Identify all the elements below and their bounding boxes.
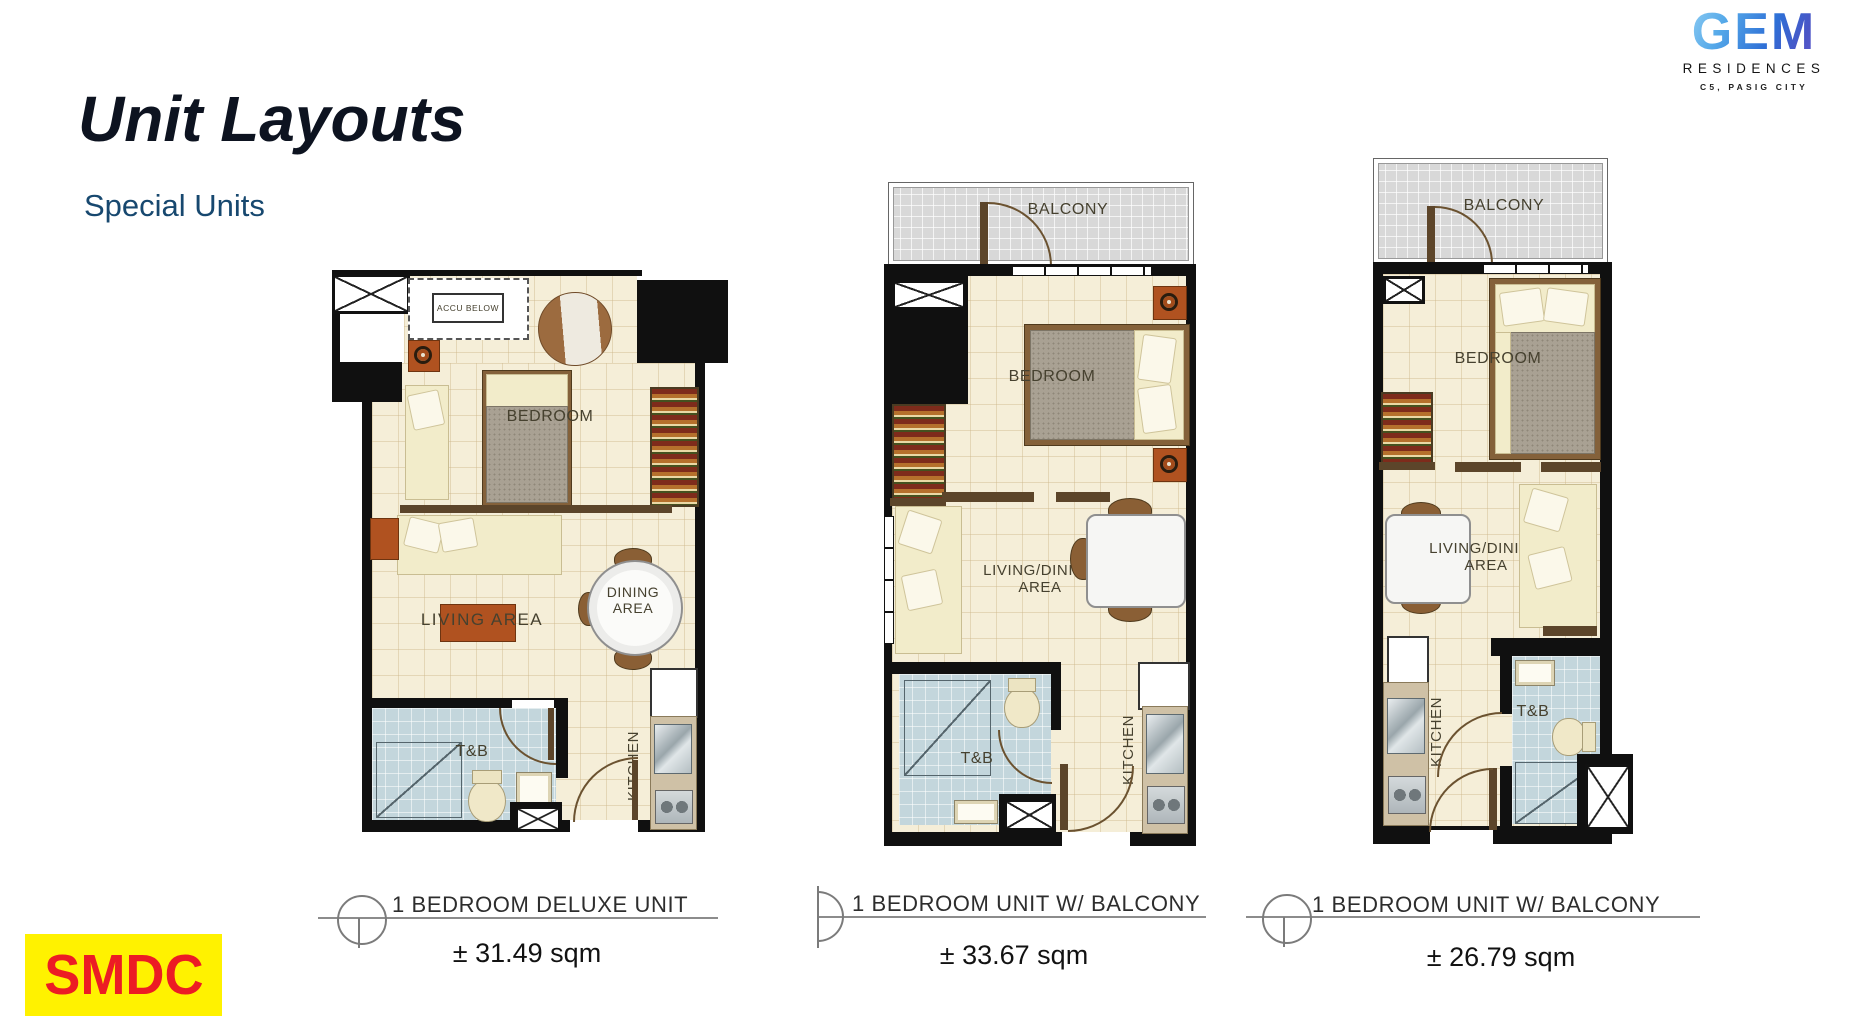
room-label-balcony: BALCONY (1456, 197, 1552, 215)
bed-pillows (486, 374, 568, 408)
room-label-accu: ACCU BELOW (432, 293, 504, 323)
kitchen-sink (1387, 698, 1425, 754)
floor-plan-balcony-1: BALCONY BEDROOM LIVING/DINING AREA T&B (884, 174, 1196, 846)
kitchen-sink (654, 724, 692, 774)
divider-wall (942, 492, 1034, 502)
room-label-tnb: T&B (442, 743, 502, 761)
shelf (1543, 626, 1597, 636)
lamp (1160, 293, 1178, 311)
window-box (892, 280, 966, 310)
wall-block (637, 280, 728, 363)
caption-marker (818, 891, 844, 942)
slide-background: { "slide": { "title": "Unit Layouts", "s… (0, 0, 1860, 1024)
shaft-box (1585, 764, 1631, 830)
wall (884, 832, 1196, 846)
unit-caption-3: 1 BEDROOM UNIT W/ BALCONY (1312, 892, 1660, 918)
bathroom-sink (516, 772, 552, 806)
stove (1147, 786, 1185, 824)
caption-marker-tick (1283, 917, 1285, 947)
unit-area-3: ± 26.79 sqm (1351, 942, 1651, 973)
room-label-bedroom: BEDROOM (1002, 368, 1102, 386)
caption-marker (1262, 894, 1312, 944)
unit-caption-1: 1 BEDROOM DELUXE UNIT (392, 892, 688, 918)
gem-residences-logo: GEM RESIDENCES C5, PASIG CITY (1678, 6, 1830, 92)
window (1483, 264, 1589, 274)
unit-area-2: ± 33.67 sqm (864, 940, 1164, 971)
toilet (1552, 718, 1586, 756)
caption-marker-tick (358, 918, 360, 948)
wall (332, 306, 340, 364)
wall (890, 662, 1061, 674)
door-leaf (548, 708, 554, 760)
shelf (1379, 462, 1435, 470)
pillow (1499, 287, 1545, 327)
room-label-dining: DINING AREA (598, 584, 668, 616)
dining-table (1086, 514, 1186, 608)
bathroom-sink (954, 800, 998, 824)
stove (1388, 776, 1426, 814)
room-label-bedroom: BEDROOM (1448, 350, 1548, 368)
unit-area-1: ± 31.49 sqm (377, 938, 677, 969)
wall (362, 402, 372, 828)
side-table (370, 518, 399, 560)
window-box (332, 274, 410, 314)
gem-logo-residences: RESIDENCES (1678, 61, 1830, 76)
lamp (414, 346, 432, 364)
page-subtitle: Special Units (84, 188, 265, 224)
refrigerator (1387, 636, 1429, 684)
wall (1600, 274, 1612, 830)
shaft-box (516, 807, 560, 831)
room-label-tnb: T&B (1503, 703, 1563, 721)
toilet-tank (472, 770, 502, 784)
unit-caption-2: 1 BEDROOM UNIT W/ BALCONY (852, 891, 1200, 917)
shaft-box (1005, 800, 1054, 830)
refrigerator (650, 668, 698, 718)
wall (1373, 274, 1383, 838)
refrigerator (1138, 662, 1190, 710)
toilet-tank (1582, 722, 1596, 752)
caption-marker-tick (817, 886, 819, 948)
room-label-bedroom: BEDROOM (500, 408, 600, 426)
wall-block (332, 362, 402, 402)
pillow (1543, 287, 1589, 327)
room-label-tnb: T&B (947, 750, 1007, 768)
door-opening (1430, 830, 1493, 844)
balcony-door-leaf (980, 202, 988, 264)
smdc-logo-text: SMDC (44, 942, 203, 1008)
door-opening (512, 700, 554, 708)
door-leaf (1060, 764, 1068, 830)
pillow (1137, 384, 1177, 434)
stove (655, 790, 693, 824)
divider-wall (1455, 462, 1521, 472)
sofa-pillow (901, 569, 944, 612)
wall (1051, 662, 1061, 730)
divider-wall (400, 505, 672, 513)
smdc-logo: SMDC (25, 934, 222, 1016)
toilet (468, 780, 506, 822)
kitchen-sink (1146, 714, 1184, 774)
wall (1491, 638, 1612, 656)
window (1012, 266, 1152, 276)
floor-plan-deluxe: ACCU BELOW BEDROOM LIVING AREA DINING AR… (332, 262, 732, 845)
bathroom-sink (1515, 660, 1555, 686)
divider-wall (1541, 462, 1601, 472)
wardrobe (892, 404, 946, 502)
divider-wall (1056, 492, 1110, 502)
pillow (1137, 334, 1177, 384)
wall (556, 698, 568, 778)
wardrobe (650, 387, 699, 507)
gem-logo-wordmark: GEM (1678, 6, 1830, 58)
door-opening (1062, 832, 1130, 846)
window (884, 516, 894, 644)
balcony-door-leaf (1427, 206, 1435, 262)
toilet (1004, 688, 1040, 728)
floor-plan-balcony-2: BALCONY BEDROOM LIVING/DINING AREA KITCH… (1373, 154, 1635, 844)
lamp (1160, 455, 1178, 473)
page-title: Unit Layouts (78, 82, 466, 156)
door-leaf (632, 760, 638, 820)
toilet-tank (1008, 678, 1036, 692)
gem-logo-location: C5, PASIG CITY (1678, 82, 1830, 92)
pillow (438, 517, 479, 553)
room-label-balcony: BALCONY (1020, 201, 1116, 219)
wardrobe (1381, 392, 1433, 466)
window-box (1383, 276, 1425, 304)
shelf (890, 498, 946, 506)
room-label-living: LIVING AREA (412, 610, 552, 630)
